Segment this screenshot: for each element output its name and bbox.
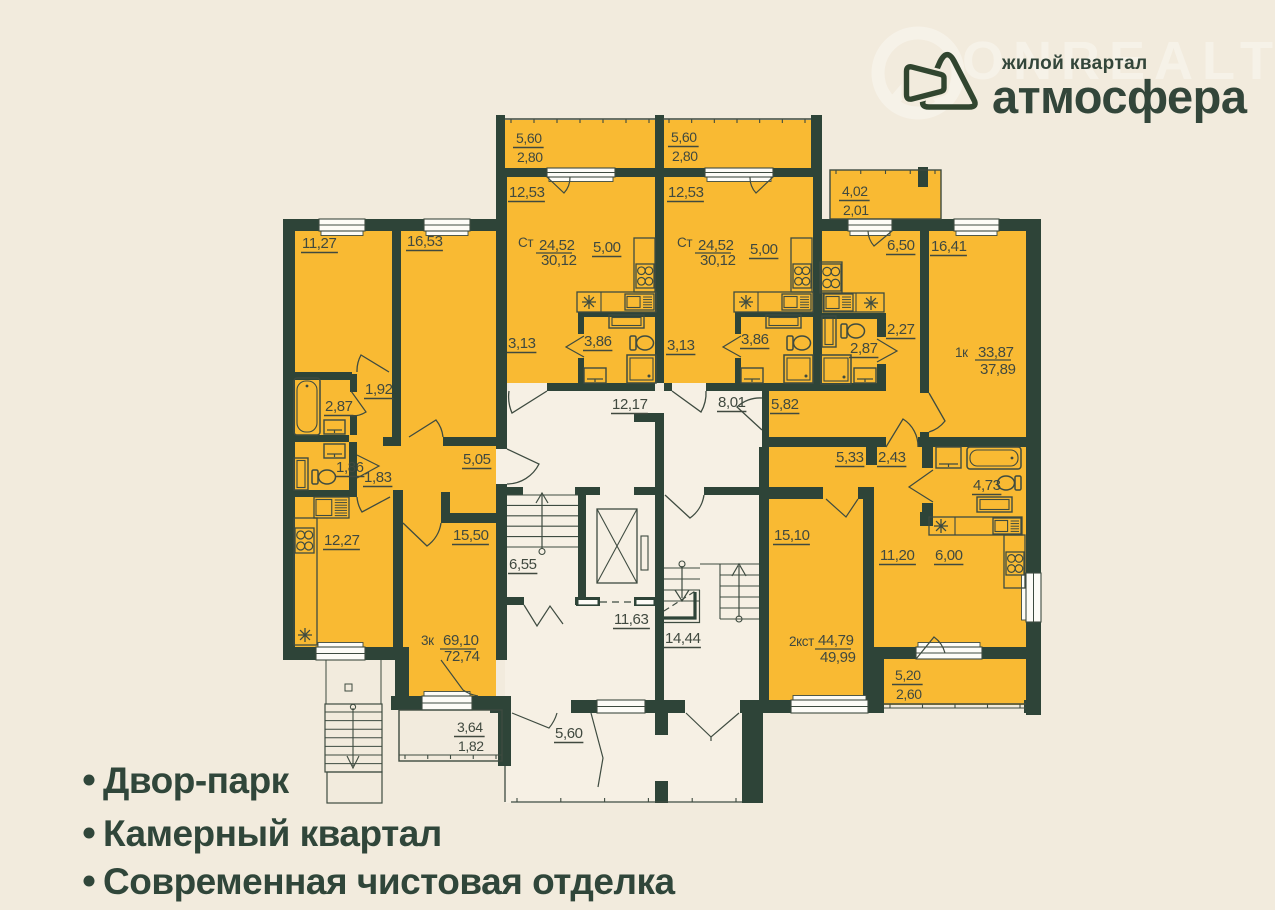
svg-text:1,92: 1,92 [365,381,393,398]
svg-text:16,53: 16,53 [407,233,443,250]
svg-text:5,60: 5,60 [516,130,542,146]
svg-text:3,86: 3,86 [741,331,769,348]
svg-text:5,20: 5,20 [895,667,921,683]
svg-text:12,17: 12,17 [612,396,648,413]
svg-text:3,13: 3,13 [508,335,536,352]
svg-text:Современная чистовая отделка: Современная чистовая отделка [103,861,675,902]
svg-text:2,80: 2,80 [672,148,698,164]
svg-text:5,00: 5,00 [750,241,778,258]
svg-text:3,64: 3,64 [457,719,483,735]
svg-text:2,60: 2,60 [896,686,922,702]
svg-text:4,73: 4,73 [973,477,1001,494]
svg-text:15,10: 15,10 [774,527,810,544]
svg-text:30,12: 30,12 [541,252,577,269]
svg-text:2,43: 2,43 [878,449,906,466]
svg-text:1,82: 1,82 [458,738,484,754]
svg-text:2,27: 2,27 [887,321,915,338]
svg-text:1,83: 1,83 [364,469,392,486]
svg-text:атмосфера: атмосфера [992,70,1248,123]
svg-text:5,60: 5,60 [555,725,583,742]
svg-text:2,80: 2,80 [517,149,543,165]
svg-text:3к: 3к [421,633,434,648]
svg-text:5,60: 5,60 [671,129,697,145]
svg-text:4,02: 4,02 [842,183,868,199]
svg-text:12,27: 12,27 [324,532,360,549]
svg-text:37,89: 37,89 [980,361,1016,378]
svg-text:Камерный квартал: Камерный квартал [103,813,442,854]
svg-text:5,33: 5,33 [836,449,864,466]
svg-text:1к: 1к [955,345,968,360]
svg-text:6,50: 6,50 [887,237,915,254]
svg-text:6,55: 6,55 [509,556,537,573]
svg-text:Двор-парк: Двор-парк [103,760,290,801]
svg-text:30,12: 30,12 [700,252,736,269]
svg-text:2,87: 2,87 [850,340,878,357]
svg-text:3,86: 3,86 [584,333,612,350]
svg-text:33,87: 33,87 [978,344,1014,361]
svg-text:15,50: 15,50 [453,527,489,544]
svg-text:2кст: 2кст [789,634,814,649]
svg-text:11,63: 11,63 [614,611,648,628]
svg-text:11,27: 11,27 [302,235,336,252]
svg-text:2,01: 2,01 [843,202,869,218]
svg-text:1,86: 1,86 [336,459,364,476]
svg-text:3,13: 3,13 [667,337,695,354]
svg-text:5,05: 5,05 [463,451,491,468]
svg-text:49,99: 49,99 [820,649,856,666]
svg-text:Ст: Ст [518,235,533,250]
svg-text:8,01: 8,01 [718,394,746,411]
svg-text:5,82: 5,82 [771,396,799,413]
svg-text:5,00: 5,00 [593,239,621,256]
svg-text:69,10: 69,10 [443,632,479,649]
svg-text:2,87: 2,87 [325,398,353,415]
svg-text:Ст: Ст [677,235,692,250]
svg-text:12,53: 12,53 [509,184,545,201]
svg-text:72,74: 72,74 [444,648,480,665]
svg-text:12,53: 12,53 [668,184,704,201]
svg-text:44,79: 44,79 [818,632,854,649]
svg-text:14,44: 14,44 [665,630,701,647]
svg-text:16,41: 16,41 [931,238,967,255]
svg-text:11,20: 11,20 [880,547,914,564]
svg-text:6,00: 6,00 [935,547,963,564]
